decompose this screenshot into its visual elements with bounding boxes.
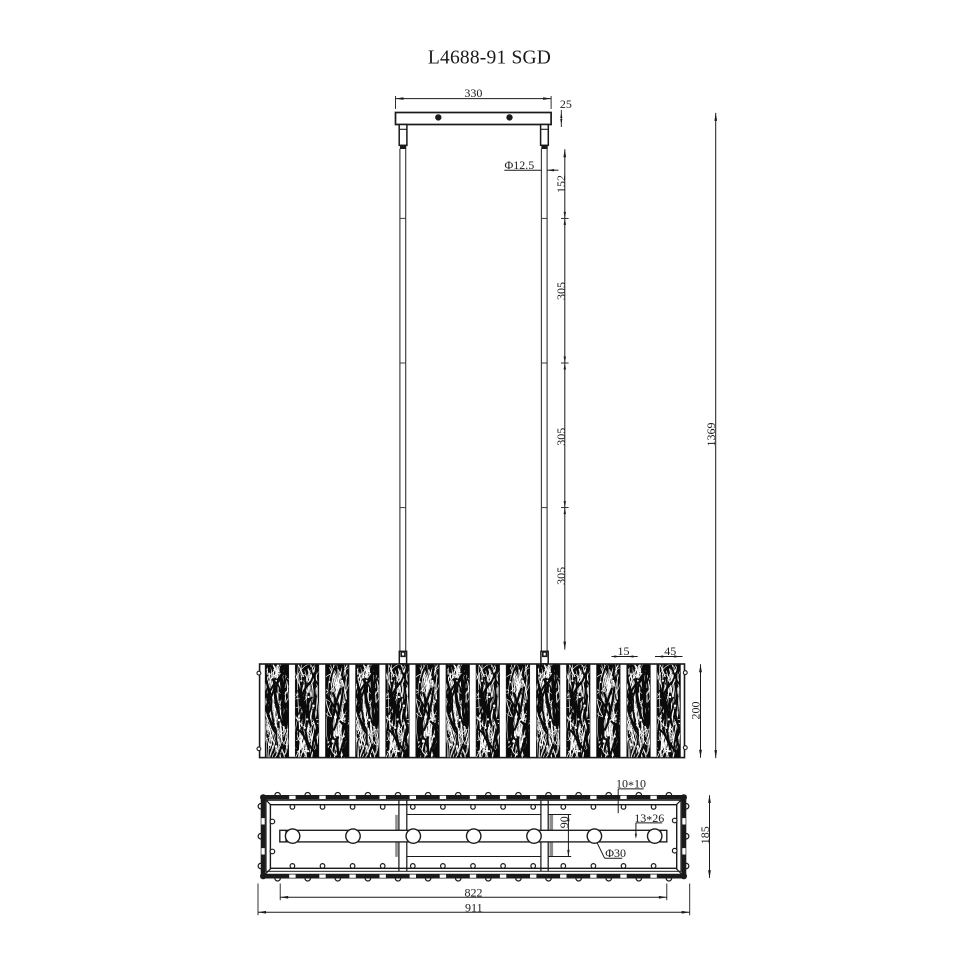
svg-text:10*10: 10*10: [616, 776, 646, 792]
svg-text:305: 305: [554, 428, 568, 446]
svg-text:L4688-91 SGD: L4688-91 SGD: [428, 47, 551, 68]
svg-text:152: 152: [554, 175, 568, 193]
svg-text:200: 200: [689, 702, 703, 720]
svg-text:185: 185: [698, 826, 712, 844]
svg-text:90: 90: [557, 816, 571, 828]
svg-text:330: 330: [464, 86, 482, 100]
svg-text:822: 822: [465, 885, 483, 899]
svg-text:25: 25: [560, 97, 572, 111]
svg-text:1369: 1369: [704, 423, 718, 447]
svg-text:Φ30: Φ30: [605, 846, 626, 860]
svg-text:15: 15: [618, 644, 630, 658]
svg-text:13*26: 13*26: [634, 811, 664, 827]
svg-text:911: 911: [465, 901, 483, 915]
svg-text:305: 305: [554, 282, 568, 300]
svg-text:305: 305: [554, 567, 568, 585]
